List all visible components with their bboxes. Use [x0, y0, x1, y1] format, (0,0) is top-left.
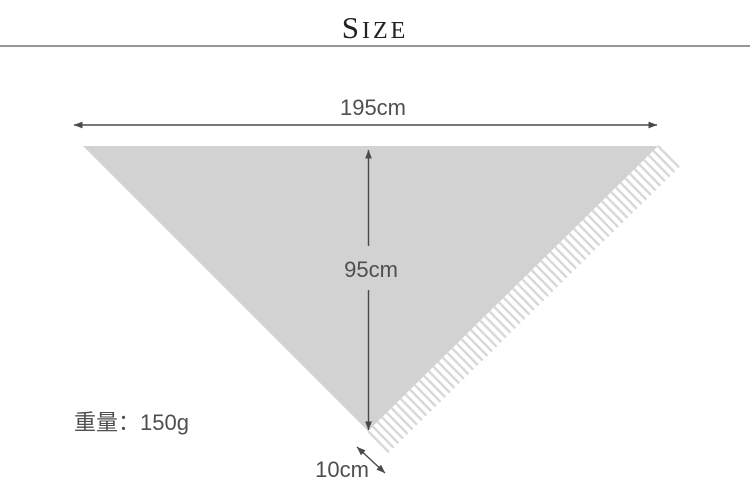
fringe-line [494, 307, 515, 328]
fringe-line [471, 330, 492, 351]
fringe-line [602, 201, 623, 222]
height-measure-label: 95cm [344, 257, 398, 282]
fringe-line [508, 293, 529, 314]
fringe-line [527, 275, 548, 296]
fringe-line [396, 403, 417, 424]
fringe-line [504, 298, 525, 319]
fringe-line [569, 233, 590, 254]
size-diagram-page: SIZE 195cm 95cm 10cm 重量：150g [0, 0, 750, 498]
fringe-line [555, 247, 576, 268]
fringe-line [518, 284, 539, 305]
fringe-line [443, 358, 464, 379]
fringe-line [429, 371, 450, 392]
fringe-line [593, 210, 614, 231]
fringe-line [387, 413, 408, 434]
fringe-line [546, 256, 567, 277]
fringe-line [574, 229, 595, 250]
fringe-line [611, 192, 632, 213]
fringe-line [513, 289, 534, 310]
fringe-line [448, 353, 469, 374]
fringe-line [550, 252, 571, 273]
fringe-line [649, 155, 670, 176]
fringe-line [644, 160, 665, 181]
fringe-line [597, 206, 618, 227]
fringe-line [625, 178, 646, 199]
fringe-line [499, 302, 520, 323]
fringe-line [607, 197, 628, 218]
fringe-line [588, 215, 609, 236]
fringe-line [522, 279, 543, 300]
fringe-line [536, 266, 557, 287]
fringe-line [583, 220, 604, 241]
fringe-line [401, 399, 422, 420]
fringe-line [438, 362, 459, 383]
fringe-line [420, 380, 441, 401]
fringe-line [410, 390, 431, 411]
fringe-line [466, 335, 487, 356]
fringe-line [476, 325, 497, 346]
fringe-line [382, 417, 403, 438]
fringe-line [639, 164, 660, 185]
fringe-line [415, 385, 436, 406]
fringe-line [658, 146, 679, 167]
fringe-line [653, 151, 674, 172]
fringe-measure-label: 10cm [315, 457, 369, 482]
fringe-line [391, 408, 412, 429]
fringe-line [368, 431, 389, 452]
fringe-line [462, 339, 483, 360]
fringe-line [532, 270, 553, 291]
fringe-line [457, 344, 478, 365]
fringe-line [405, 394, 426, 415]
fringe-line [490, 312, 511, 333]
fringe-line [373, 426, 394, 447]
fringe-line [621, 183, 642, 204]
fringe-line [616, 187, 637, 208]
shawl-size-diagram: 195cm 95cm 10cm 重量：150g [0, 0, 750, 498]
fringe-line [630, 174, 651, 195]
fringe-line [579, 224, 600, 245]
fringe-line [480, 321, 501, 342]
fringe-line [452, 348, 473, 369]
width-measure-label: 195cm [340, 95, 406, 120]
fringe-line [541, 261, 562, 282]
fringe-line [560, 243, 581, 264]
fringe-line [424, 376, 445, 397]
fringe-line [485, 316, 506, 337]
fringe-line [635, 169, 656, 190]
fringe-line [377, 422, 398, 443]
weight-label: 重量：150g [74, 410, 189, 435]
shawl-triangle-shape [83, 146, 658, 431]
fringe-line [565, 238, 586, 259]
fringe-line [434, 367, 455, 388]
